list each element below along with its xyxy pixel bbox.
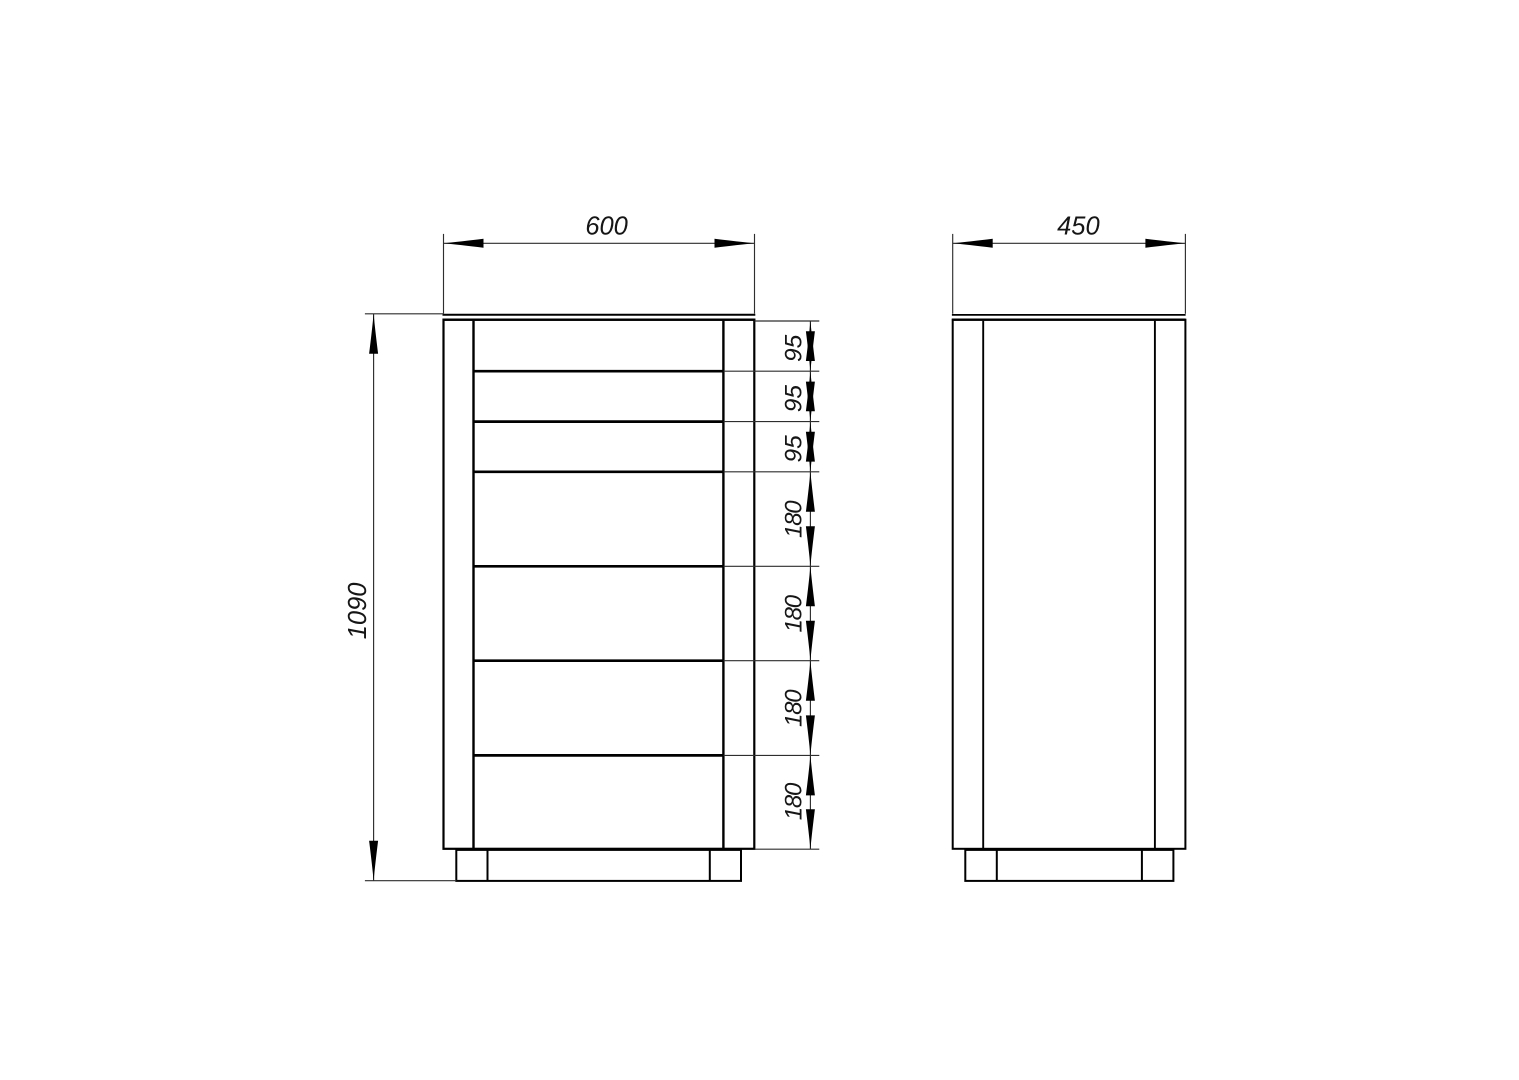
svg-text:180: 180 — [781, 782, 808, 820]
svg-text:95: 95 — [781, 435, 808, 463]
svg-text:1090: 1090 — [344, 583, 372, 640]
svg-text:95: 95 — [781, 334, 808, 362]
svg-text:450: 450 — [1057, 213, 1100, 241]
svg-text:180: 180 — [781, 594, 808, 632]
svg-text:600: 600 — [585, 213, 628, 241]
svg-text:180: 180 — [781, 689, 808, 727]
svg-text:95: 95 — [781, 385, 808, 413]
svg-text:180: 180 — [781, 500, 808, 538]
